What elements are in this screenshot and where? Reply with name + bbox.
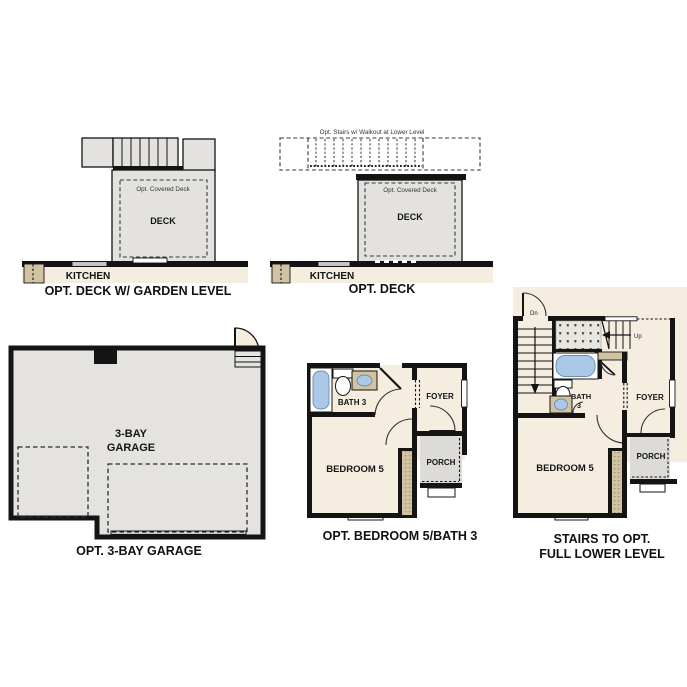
foyer-right-wall [462,363,467,455]
exterior-stairs [82,138,183,171]
lower-stairs-below [556,321,609,352]
wall-end-cap [24,264,44,283]
stair-run [113,138,178,167]
bath-label-line1: BATH [571,392,591,401]
porch-label: PORCH [637,452,666,461]
top-wall-mid [548,316,605,321]
foyer-wall-stub-upper [622,360,627,383]
porch-bottom-wall [630,479,677,484]
porch-step [428,488,455,497]
tub-basin [556,356,595,377]
right-wall [670,318,675,438]
panel-caption-line1: STAIRS TO OPT. [554,532,651,546]
porch: PORCH [420,436,462,497]
kitchen-label: KITCHEN [310,271,354,282]
closet-wall [608,451,612,513]
bedroom-bottom [513,513,627,520]
foyer-window [670,380,676,407]
deck-top-wall [356,174,466,180]
kitchen-floor [270,267,493,283]
deck-area: Opt. Covered Deck DECK [356,174,466,262]
opt-stairs-note: Opt. Stairs w/ Walkout at Lower Level [320,129,425,136]
porch-step [640,484,665,492]
bath-wall [307,412,375,417]
bedroom-label: BEDROOM 5 [536,463,594,474]
sink-basin [357,375,372,386]
foyer-label: FOYER [426,392,454,401]
toilet-bowl-icon [336,377,351,396]
porch-top-wall [627,433,675,437]
covered-deck-label: Opt. Covered Deck [136,186,190,193]
panel-caption-line2: FULL LOWER LEVEL [539,547,665,561]
top-wall-right [402,363,467,368]
left-wall [513,316,518,518]
deck-rail-corner [183,139,215,171]
porch-label: PORCH [427,458,456,467]
kitchen-floor [22,267,248,283]
covered-deck-label: Opt. Covered Deck [383,187,437,194]
wall-notch [94,348,117,364]
bedroom-right-wall [622,437,627,518]
sink-basin [555,399,568,410]
tub-basin [313,371,329,409]
panel-caption: OPT. BEDROOM 5/BATH 3 [323,529,478,543]
top-wall-left [307,363,380,368]
stairs-below-dots [556,321,601,349]
foyer-label: FOYER [636,393,664,402]
top-window [605,317,637,321]
optional-stairs-outline [280,138,480,170]
right-wall [412,408,417,518]
stairs-dashed-treads [316,139,415,168]
kitchen-strip: KITCHEN [270,261,493,283]
panel-opt-deck: Opt. Stairs w/ Walkout at Lower Level Op… [262,120,502,302]
panel-opt-deck-garden-level: Opt. Covered Deck DECK KITCHEN OPT. DECK… [0,125,260,305]
closet-wall [398,451,402,515]
foyer-window [462,380,468,407]
kitchen-label: KITCHEN [66,271,110,282]
deck-label: DECK [150,216,176,226]
up-label: Up [634,334,642,340]
closet [608,437,627,518]
bedroom-label: BEDROOM 5 [326,464,384,475]
floorplan-options-sheet: Opt. Covered Deck DECK KITCHEN OPT. DECK… [0,0,687,687]
panel-caption: OPT. 3-BAY GARAGE [76,544,202,558]
deck-label: DECK [397,212,423,222]
stair-landing [82,138,113,167]
panel-stairs-to-lower-level: Dn Up [505,283,687,568]
porch: PORCH [627,433,677,492]
panel-opt-bedroom5-bath3: BATH 3 FOYER PORCH [300,358,500,550]
stairs-below-edge [556,349,602,352]
foyer-wall-stub [412,365,417,380]
panel-opt-3-bay-garage: 3-BAY GARAGE OPT. 3-BAY GARAGE [0,325,280,565]
panel-caption: OPT. DECK W/ GARDEN LEVEL [45,284,232,298]
bath-label: BATH 3 [338,398,367,407]
closet-door-texture [612,451,622,513]
foyer-wall-stub-lower [622,410,627,437]
deck-slider-door [133,258,167,263]
kitchen-strip: KITCHEN [22,258,248,283]
kitchen-wall [270,261,493,267]
dn-label: Dn [530,311,538,317]
panel-caption: OPT. DECK [349,282,416,296]
closet-cap [398,448,417,451]
closet-door-texture [402,451,412,515]
garage-label-line1: 3-BAY [115,428,148,440]
bath-bottom-wall [518,413,585,418]
porch-bottom-wall [420,483,462,488]
garage-label-line2: GARAGE [107,442,155,454]
